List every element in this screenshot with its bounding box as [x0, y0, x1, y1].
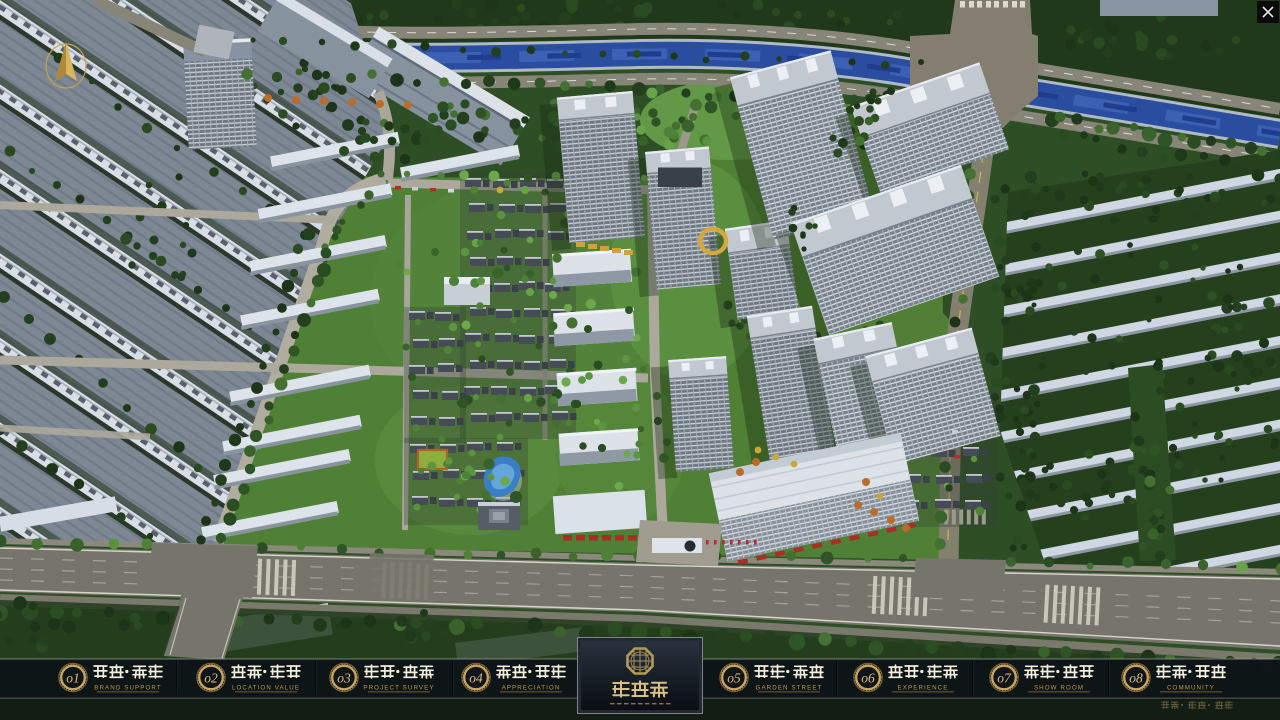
- svg-text:o4: o4: [469, 671, 483, 686]
- svg-text:COMMUNITY: COMMUNITY: [1167, 685, 1215, 692]
- svg-text:o6: o6: [861, 671, 875, 686]
- svg-text:GARDEN STREET: GARDEN STREET: [756, 685, 823, 692]
- svg-text:PROJECT SURVEY: PROJECT SURVEY: [363, 685, 434, 692]
- svg-text:BRAND SUPPORT: BRAND SUPPORT: [94, 685, 161, 692]
- svg-text:o7: o7: [997, 671, 1012, 686]
- svg-text:LOCATION VALUE: LOCATION VALUE: [232, 685, 300, 692]
- svg-text:o1: o1: [66, 671, 80, 686]
- svg-text:o2: o2: [204, 671, 218, 686]
- svg-text:APPRECIATION: APPRECIATION: [502, 685, 561, 692]
- svg-text:o8: o8: [1129, 671, 1143, 686]
- svg-text:SHOW ROOM: SHOW ROOM: [1034, 685, 1084, 692]
- svg-text:o3: o3: [337, 671, 351, 686]
- svg-text:EXPERIENCE: EXPERIENCE: [898, 685, 949, 692]
- svg-text:o5: o5: [727, 671, 741, 686]
